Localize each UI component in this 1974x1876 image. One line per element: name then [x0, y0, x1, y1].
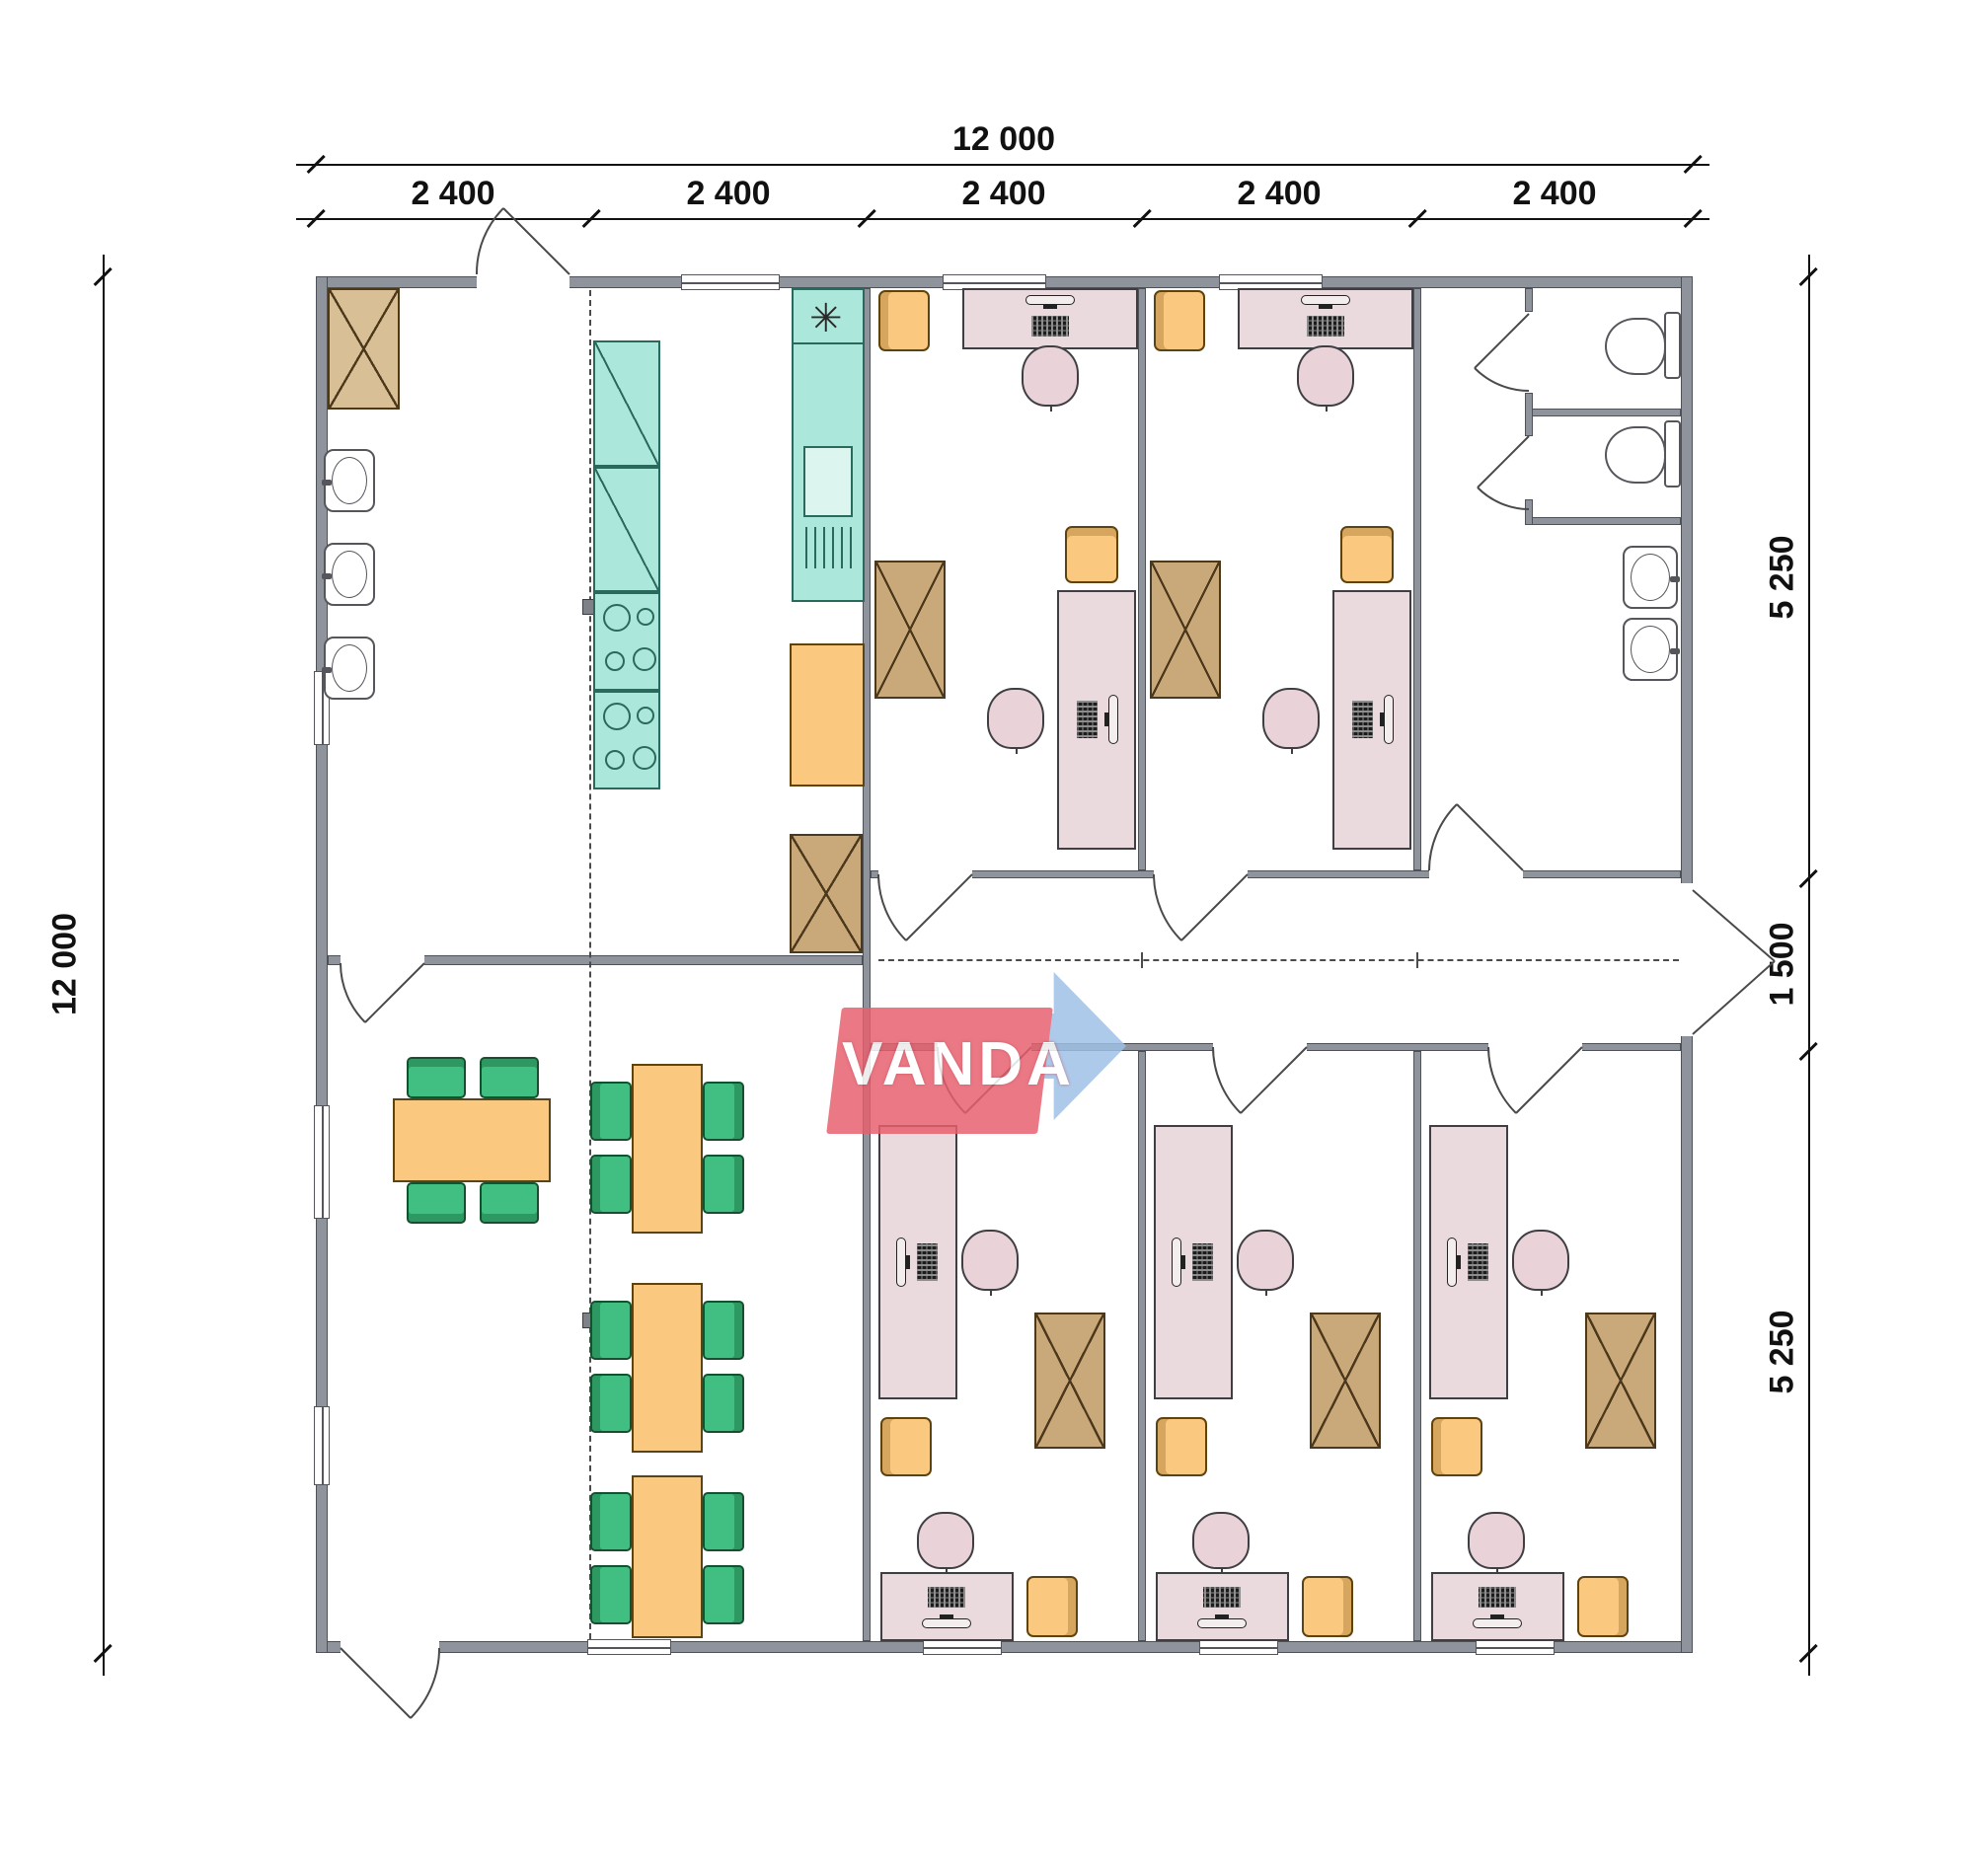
window	[681, 274, 780, 290]
office-chair	[1022, 345, 1079, 407]
door-arc	[1478, 488, 1529, 509]
computer	[1468, 1584, 1527, 1629]
vent-symbol: ✳	[809, 296, 843, 341]
door-arc	[878, 874, 906, 940]
computer	[917, 1584, 976, 1629]
visitor-chair	[1156, 1417, 1207, 1476]
dim-module-label: 2 400	[1237, 175, 1321, 213]
visitor-chair	[1065, 526, 1118, 583]
dim-left-label: 12 000	[46, 913, 85, 1015]
visitor-chair	[880, 1417, 932, 1476]
wash-basin	[1623, 546, 1678, 609]
wash-basin	[324, 637, 375, 700]
stove	[593, 592, 660, 691]
dining-chair	[407, 1182, 466, 1224]
wardrobe-cabinet	[1585, 1313, 1656, 1449]
door-leaf	[1475, 314, 1529, 368]
dining-chair	[590, 1155, 632, 1214]
computer	[1446, 1233, 1491, 1292]
computer	[1349, 690, 1395, 749]
wardrobe-cabinet	[1150, 561, 1221, 699]
window	[314, 1406, 330, 1485]
door-leaf	[1457, 804, 1523, 870]
dining-chair	[703, 1374, 744, 1433]
dim-line-left	[103, 255, 105, 1676]
door-arc	[411, 1648, 439, 1718]
door-leaf	[906, 874, 972, 940]
wall-interior	[1413, 1051, 1421, 1641]
wardrobe-cabinet	[1310, 1313, 1381, 1449]
door-opening-corridor-exterior	[1679, 883, 1695, 1036]
door-opening-main-entrance	[477, 274, 569, 290]
visitor-chair	[1431, 1417, 1482, 1476]
door-arc	[1475, 368, 1529, 391]
dining-chair	[590, 1565, 632, 1624]
wash-basin	[324, 449, 375, 512]
office-chair	[1468, 1512, 1525, 1569]
dim-line-top-total	[296, 164, 1709, 166]
dim-module-label: 2 400	[686, 175, 770, 213]
dim-right-label: 1 500	[1764, 922, 1802, 1006]
window	[1476, 1639, 1555, 1655]
wall-wc-stub	[1525, 393, 1533, 436]
toilet	[1605, 426, 1666, 484]
computer	[1021, 294, 1080, 339]
wall-corridor-top	[871, 870, 1681, 878]
door-leaf	[1241, 1047, 1307, 1113]
dim-right-label: 5 250	[1764, 1310, 1802, 1393]
door-arc	[1488, 1047, 1516, 1113]
dining-chair	[703, 1301, 744, 1360]
floor-plan: 12 000 2 400 2 400 2 400 2 400 2 400 12 …	[0, 0, 1974, 1876]
wardrobe-cabinet	[1034, 1313, 1105, 1449]
door-opening-office	[1488, 1041, 1582, 1053]
door-opening-office	[1154, 868, 1248, 880]
door-arc	[1213, 1047, 1241, 1113]
dining-chair	[480, 1182, 539, 1224]
dim-line-top-modules	[296, 218, 1709, 220]
door-opening-office	[1213, 1041, 1307, 1053]
dining-chair	[703, 1492, 744, 1551]
door-leaf	[1478, 436, 1529, 488]
door-leaf	[365, 963, 424, 1022]
computer	[1171, 1233, 1216, 1292]
computer	[895, 1233, 941, 1292]
door-leaf	[1516, 1047, 1582, 1113]
visitor-chair	[1577, 1576, 1629, 1637]
wall-interior	[1413, 288, 1421, 870]
dining-table	[632, 1064, 703, 1234]
dining-chair	[590, 1082, 632, 1141]
visitor-chair	[1026, 1576, 1078, 1637]
wall-interior	[1138, 1051, 1146, 1641]
office-chair	[917, 1512, 974, 1569]
wall-wc-stub	[1525, 288, 1533, 312]
door-leaf	[341, 1648, 411, 1718]
door-arc	[1154, 874, 1181, 940]
door-opening-office	[878, 868, 972, 880]
door-opening-washroom	[1429, 868, 1523, 880]
dining-chair	[590, 1301, 632, 1360]
dim-line-right	[1808, 255, 1810, 1676]
office-chair	[987, 688, 1044, 749]
dim-right-label: 5 250	[1764, 535, 1802, 619]
wash-basin	[324, 543, 375, 606]
visitor-chair	[1340, 526, 1394, 583]
toilet-tank	[1664, 312, 1681, 379]
dim-top-total-label: 12 000	[952, 120, 1055, 159]
wall-wc-stall	[1525, 517, 1681, 525]
dining-chair	[590, 1492, 632, 1551]
dining-chair	[407, 1057, 466, 1098]
corridor-axis-line	[878, 959, 1679, 961]
visitor-chair	[1154, 290, 1205, 351]
window	[314, 1105, 330, 1219]
window	[1199, 1639, 1278, 1655]
module-joint-line	[589, 290, 591, 1639]
kitchen-table	[790, 643, 865, 787]
fridge	[593, 467, 660, 592]
computer	[1074, 690, 1119, 749]
office-chair	[1237, 1230, 1294, 1291]
window	[923, 1639, 1002, 1655]
dining-chair	[590, 1374, 632, 1433]
axis-tick	[1141, 952, 1143, 968]
computer	[1192, 1584, 1252, 1629]
wall-wc-stall	[1525, 409, 1681, 416]
office-chair	[1297, 345, 1354, 407]
wall-interior	[1138, 288, 1146, 870]
dining-table	[632, 1283, 703, 1453]
door-opening-dining-exterior	[341, 1639, 439, 1655]
dim-module-label: 2 400	[411, 175, 494, 213]
door-leaf	[1181, 874, 1248, 940]
dim-module-label: 2 400	[1512, 175, 1596, 213]
door-opening-kitchen-dining	[341, 953, 424, 967]
dim-module-label: 2 400	[961, 175, 1045, 213]
dining-chair	[703, 1565, 744, 1624]
wardrobe-cabinet	[874, 561, 946, 699]
door-arc	[341, 963, 365, 1022]
vanda-watermark: VANDA	[834, 972, 1126, 1169]
dining-chair	[703, 1082, 744, 1141]
dining-chair	[703, 1155, 744, 1214]
office-chair	[1512, 1230, 1569, 1291]
dining-chair	[480, 1057, 539, 1098]
wardrobe-cabinet	[790, 834, 863, 953]
axis-tick	[1416, 952, 1418, 968]
dining-table	[632, 1475, 703, 1638]
computer	[1296, 294, 1355, 339]
visitor-chair	[878, 290, 930, 351]
office-chair	[1262, 688, 1320, 749]
wardrobe-cabinet	[328, 288, 400, 410]
window	[587, 1639, 671, 1655]
office-chair	[961, 1230, 1019, 1291]
office-chair	[1192, 1512, 1250, 1569]
fridge	[593, 340, 660, 467]
dining-table	[393, 1098, 551, 1182]
toilet-tank	[1664, 420, 1681, 488]
wash-basin	[1623, 618, 1678, 681]
visitor-chair	[1302, 1576, 1353, 1637]
wall-wc-stub	[1525, 499, 1533, 525]
watermark-text: VANDA	[842, 1029, 1118, 1099]
toilet	[1605, 318, 1666, 375]
door-arc	[1429, 804, 1457, 870]
stove	[593, 691, 660, 789]
